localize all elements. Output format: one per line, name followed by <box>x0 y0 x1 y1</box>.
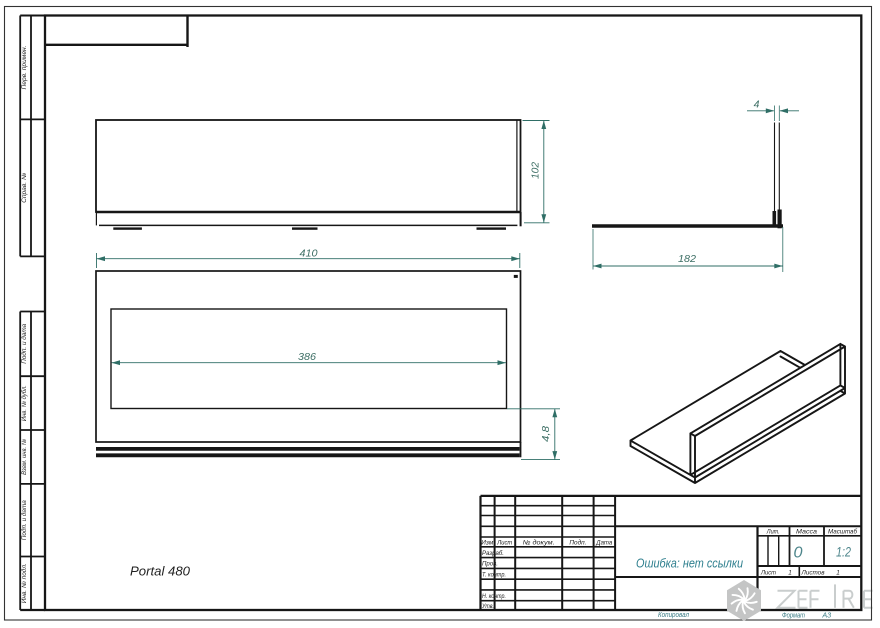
svg-text:Лит.: Лит. <box>766 529 780 536</box>
svg-text:Инв. № дубл.: Инв. № дубл. <box>21 385 28 421</box>
svg-text:182: 182 <box>678 253 696 265</box>
svg-text:Ошибка: нет ссылки: Ошибка: нет ссылки <box>636 556 744 571</box>
svg-text:4,8: 4,8 <box>540 426 552 442</box>
svg-text:Лист: Лист <box>760 570 777 577</box>
svg-text:386: 386 <box>298 351 316 363</box>
svg-text:410: 410 <box>300 248 318 260</box>
svg-text:Portal 480: Portal 480 <box>130 565 190 579</box>
svg-text:Масса: Масса <box>796 529 818 536</box>
svg-text:1: 1 <box>788 570 792 577</box>
svg-text:1:2: 1:2 <box>836 544 851 560</box>
svg-text:0: 0 <box>794 545 803 562</box>
svg-text:Подп. и дата: Подп. и дата <box>21 500 28 541</box>
svg-text:Дата: Дата <box>595 539 612 546</box>
svg-text:Подп.: Подп. <box>569 538 586 546</box>
svg-text:А3: А3 <box>821 611 831 620</box>
svg-text:Лист: Лист <box>496 539 513 546</box>
svg-text:Изм: Изм <box>481 539 494 546</box>
svg-text:Перв. примен.: Перв. примен. <box>21 46 28 90</box>
svg-text:Копировал: Копировал <box>658 610 689 619</box>
svg-text:Пров.: Пров. <box>482 561 498 568</box>
svg-text:Справ. №: Справ. № <box>21 173 28 203</box>
svg-text:102: 102 <box>529 162 541 179</box>
svg-text:Подп. и дата: Подп. и дата <box>21 323 28 364</box>
svg-text:1: 1 <box>836 570 840 577</box>
svg-text:Утв.: Утв. <box>481 603 494 610</box>
svg-text:Листов: Листов <box>801 570 826 577</box>
svg-text:Формат: Формат <box>782 611 805 620</box>
svg-text:4: 4 <box>754 99 760 111</box>
svg-text:Инв. № подл.: Инв. № подл. <box>21 563 28 603</box>
svg-text:№ докум.: № докум. <box>523 538 555 546</box>
svg-text:Разраб.: Разраб. <box>482 549 504 557</box>
svg-text:Масштаб: Масштаб <box>828 529 858 536</box>
svg-text:Т. контр.: Т. контр. <box>482 571 506 578</box>
svg-text:Взам. инв. №: Взам. инв. № <box>21 439 28 475</box>
svg-text:Н. контр.: Н. контр. <box>482 593 506 600</box>
